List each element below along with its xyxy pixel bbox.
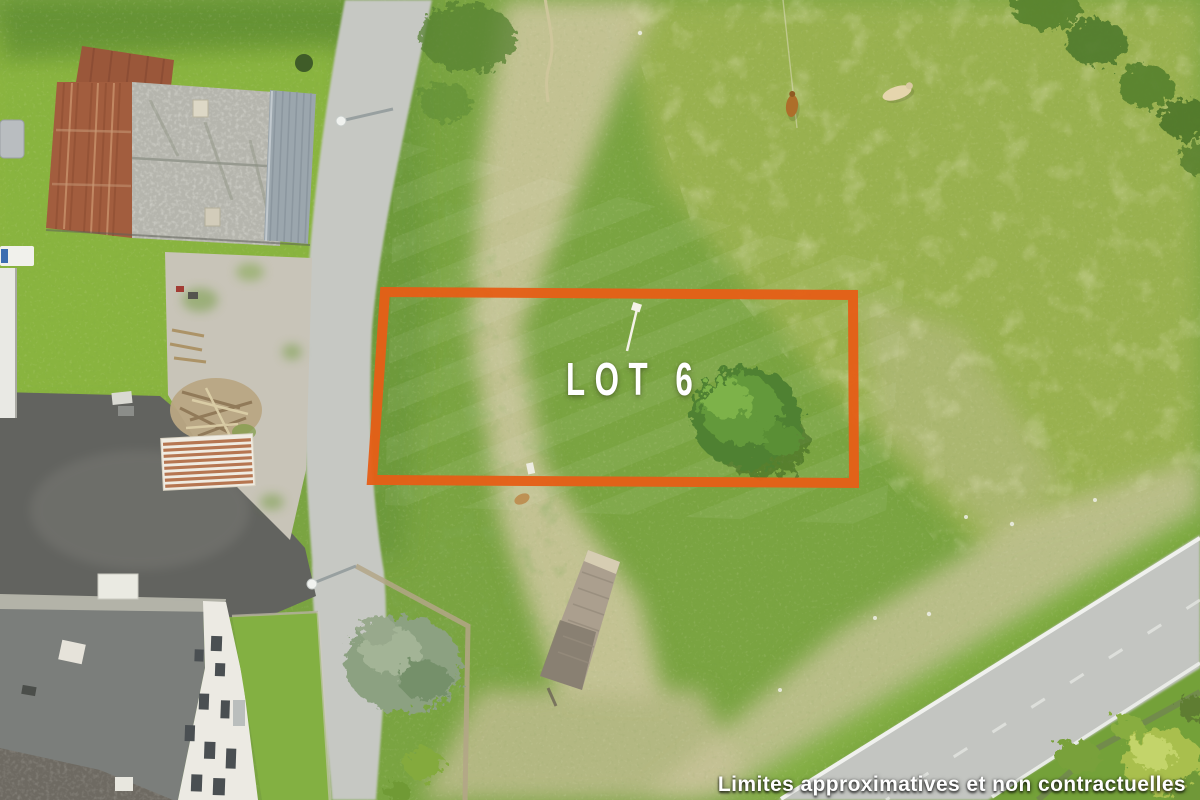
disclaimer-text: Limites approximatives et non contractue… <box>718 773 1186 797</box>
striped-shed <box>161 434 256 491</box>
parked-car <box>0 120 24 158</box>
rooftop-box <box>98 574 138 599</box>
lot-label: LOT 6 <box>566 356 702 402</box>
wood-pile <box>170 378 262 442</box>
pallet <box>111 391 132 405</box>
skylight <box>205 208 220 226</box>
skylight <box>193 100 208 117</box>
conifer-tree <box>345 616 461 712</box>
dark-bush <box>295 54 313 72</box>
aerial-photo: LOT 6 Limites approximatives et non cont… <box>0 0 1200 800</box>
